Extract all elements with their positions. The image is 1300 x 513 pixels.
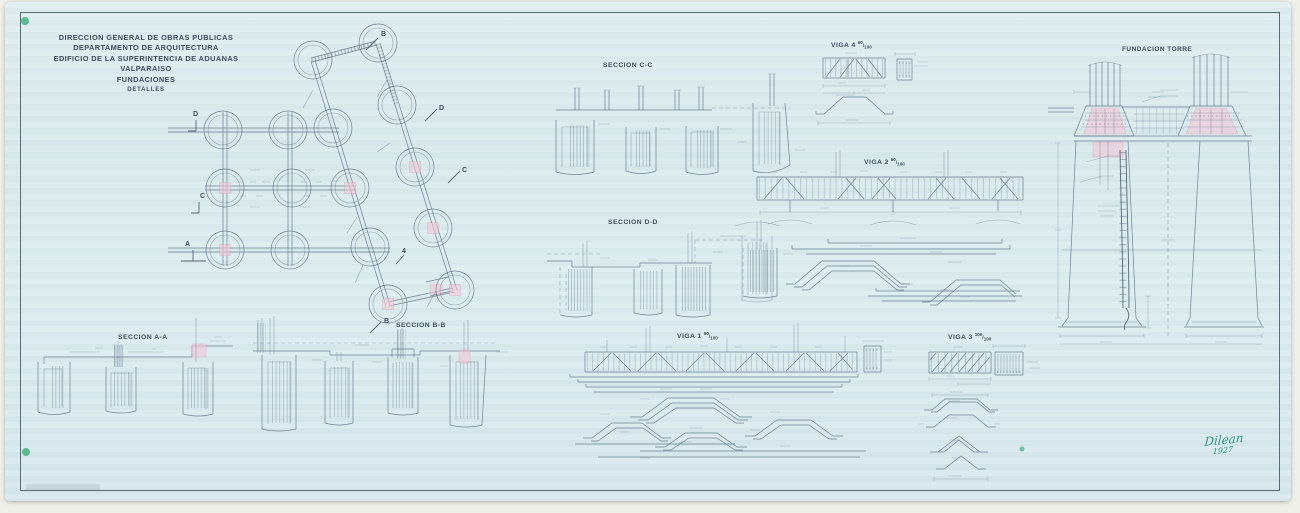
marker-a-left: A (185, 241, 190, 248)
viga2-drawing (735, 150, 1023, 305)
blueprint-page: B D C D C A 4 B (0, 0, 1300, 513)
title-line-2: DEPARTAMENTO DE ARQUITECTURA (46, 43, 246, 53)
viga2-name: VIGA 2 (864, 159, 889, 166)
signature: Dilean 1927 (1203, 432, 1244, 457)
marker-c-right: C (462, 167, 467, 174)
faint-stamp (26, 484, 100, 491)
section-bb-drawing (253, 316, 508, 431)
viga1-name: VIGA 1 (677, 333, 702, 340)
viga4-label: VIGA 460/100 (831, 40, 872, 50)
marker-d-right: D (439, 105, 444, 112)
marker-4: 4 (402, 248, 406, 255)
title-block: DIRECCION GENERAL DE OBRAS PUBLICAS DEPA… (46, 33, 246, 95)
fundacion-torre-drawing (1048, 54, 1264, 344)
section-dd-label: SECCION D-D (608, 219, 658, 226)
viga1-label: VIGA 160/100 (677, 331, 718, 341)
viga2-label: VIGA 260/100 (864, 157, 905, 167)
viga2-ratio: 60/100 (891, 160, 905, 165)
section-bb-label: SECCION B-B (396, 322, 446, 329)
viga3-ratio: 100/100 (975, 335, 992, 340)
viga1-ratio: 60/100 (704, 334, 718, 339)
viga3-label: VIGA 3100/100 (948, 332, 991, 342)
title-line-4: VALPARAISO (46, 64, 246, 74)
viga4-name: VIGA 4 (831, 42, 856, 49)
fundacion-torre-label: FUNDACION TORRE (1122, 46, 1192, 53)
marker-b-top: B (381, 31, 386, 38)
section-aa-label: SECCION A-A (118, 334, 168, 341)
title-line-3: EDIFICIO DE LA SUPERINTENCIA DE ADUANAS (46, 54, 246, 64)
viga4-ratio: 60/100 (858, 43, 872, 48)
section-cc-label: SECCION C-C (603, 62, 653, 69)
section-aa-drawing (38, 318, 233, 416)
marker-b-bottom: B (384, 318, 389, 325)
section-cc-drawing (556, 74, 805, 175)
viga4-drawing (816, 52, 928, 125)
title-line-1: DIRECCION GENERAL DE OBRAS PUBLICAS (46, 33, 246, 43)
title-line-5: FUNDACIONES (46, 75, 246, 85)
marker-c-left: C (200, 193, 205, 200)
title-line-6: DETALLES (46, 85, 246, 95)
viga3-drawing (918, 344, 1040, 481)
viga3-name: VIGA 3 (948, 334, 973, 341)
viga1-drawing (570, 323, 892, 458)
marker-d-left: D (193, 111, 198, 118)
